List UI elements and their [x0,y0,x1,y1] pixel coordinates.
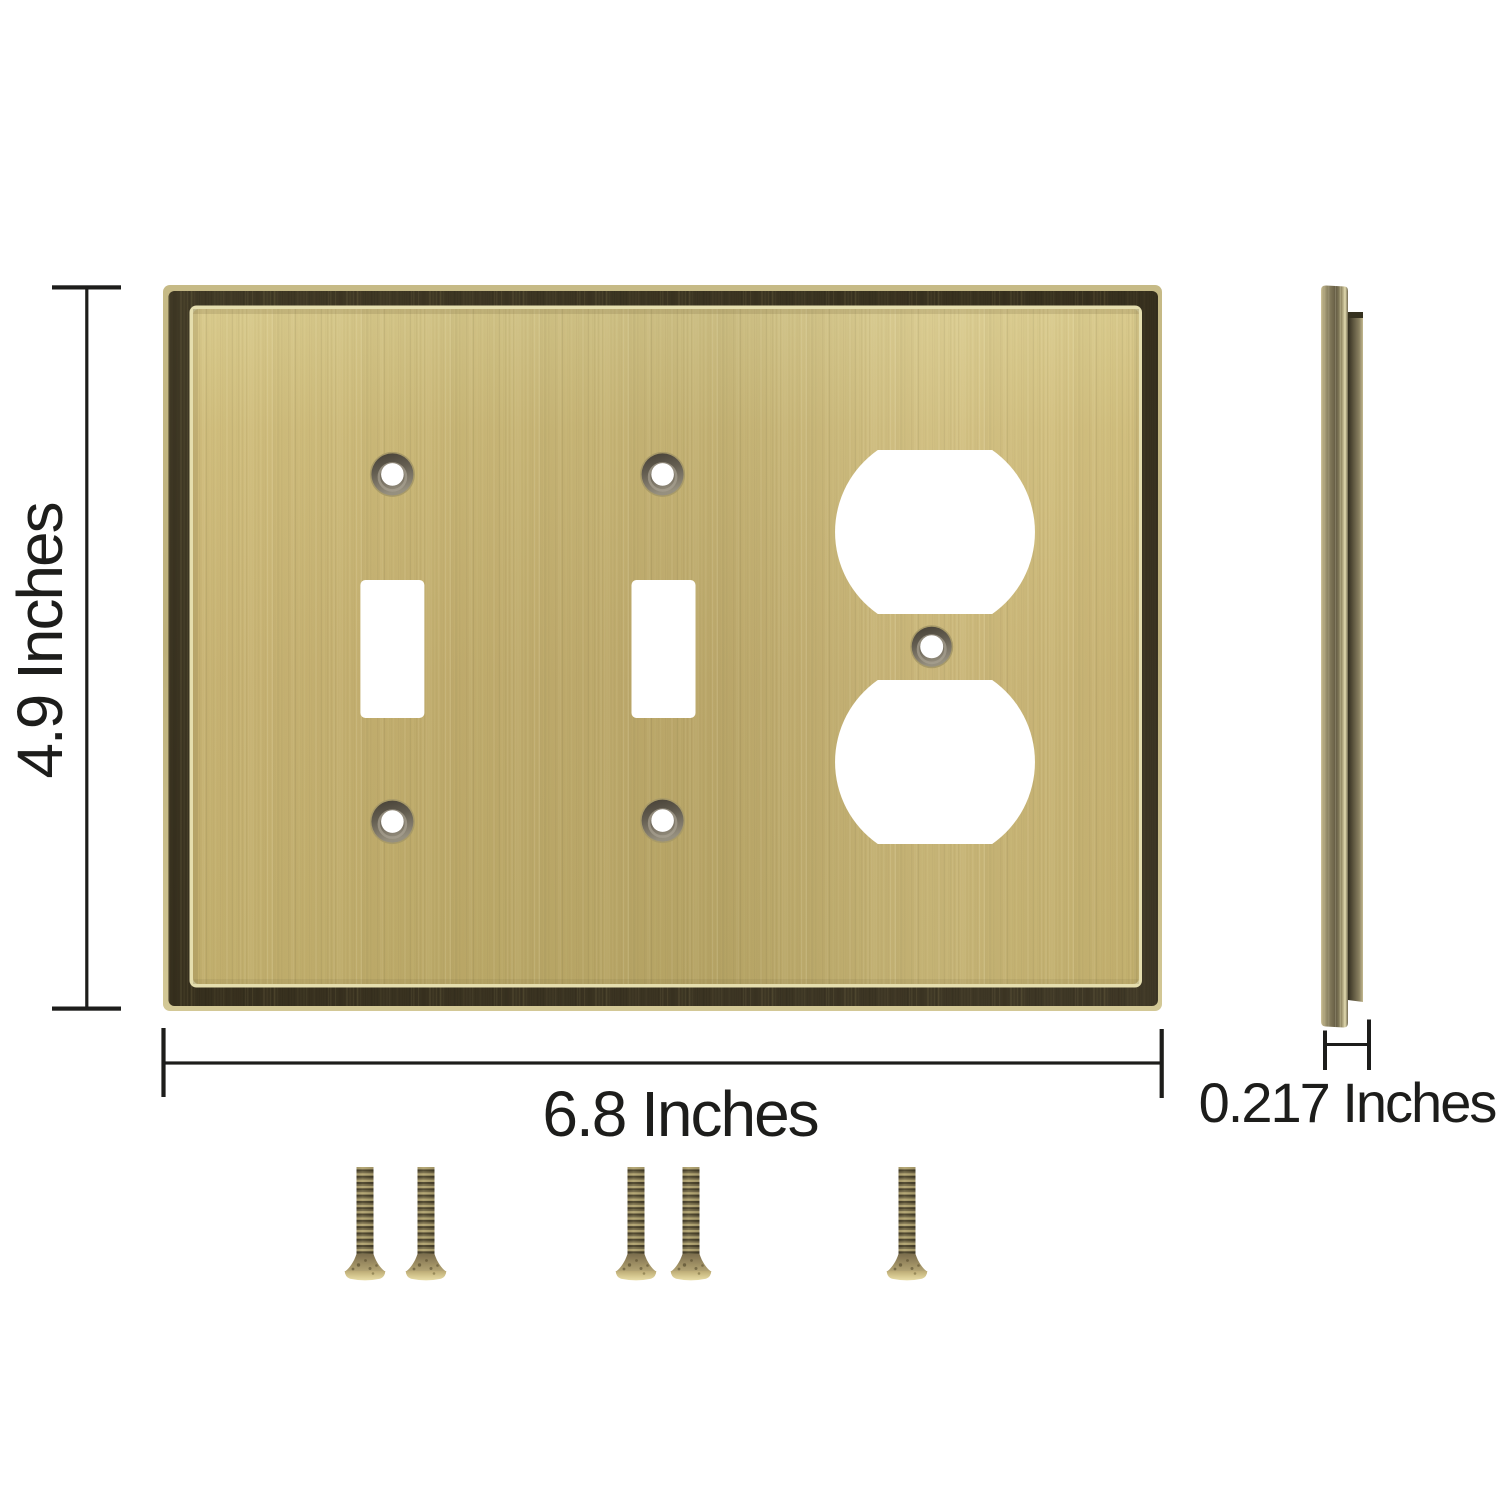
svg-text:4.9 Inches: 4.9 Inches [4,503,76,778]
svg-text:6.8 Inches: 6.8 Inches [542,1078,817,1150]
svg-text:0.217 Inches: 0.217 Inches [1199,1071,1496,1134]
